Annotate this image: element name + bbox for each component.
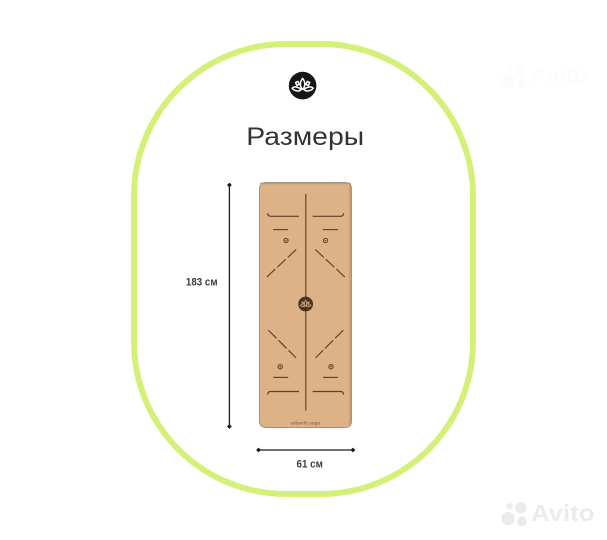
svg-text:61 см: 61 см [297,458,323,470]
svg-text:Avito: Avito [531,500,595,526]
svg-text:urbanfit yoga: urbanfit yoga [291,421,320,426]
svg-text:183 см: 183 см [186,277,218,289]
svg-text:Размеры: Размеры [246,123,364,151]
svg-text:Avito: Avito [531,62,589,88]
